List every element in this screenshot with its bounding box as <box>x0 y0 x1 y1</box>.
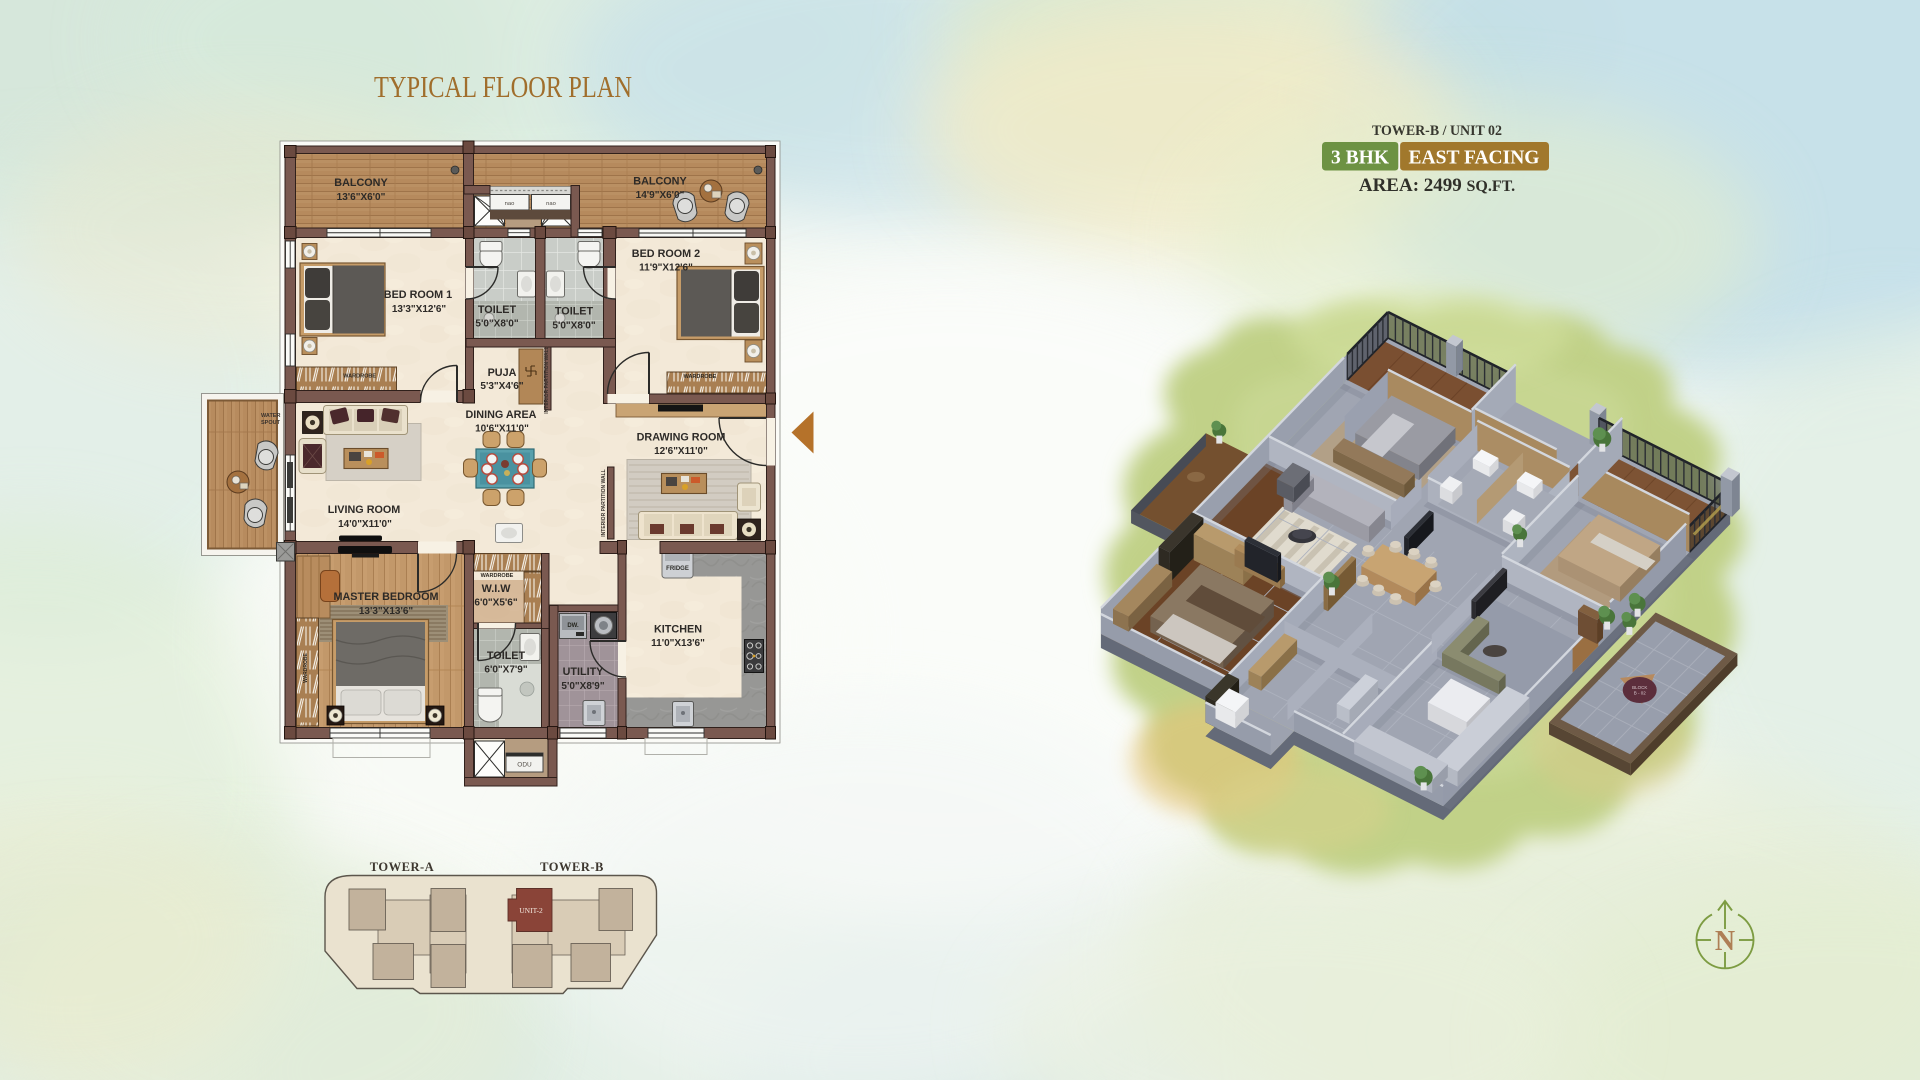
svg-text:INTERIOR PARTITION WALL: INTERIOR PARTITION WALL <box>544 346 550 413</box>
svg-text:14'0"X11'0": 14'0"X11'0" <box>338 519 392 530</box>
svg-text:5'0"X8'0": 5'0"X8'0" <box>552 321 595 332</box>
svg-text:W.I.W: W.I.W <box>482 583 512 595</box>
svg-text:5'0"X8'0": 5'0"X8'0" <box>475 319 518 330</box>
svg-text:EAST FACING: EAST FACING <box>1409 148 1540 169</box>
svg-text:WARDROBE: WARDROBE <box>303 652 309 682</box>
svg-text:TOILET: TOILET <box>555 306 594 318</box>
svg-text:LIVING ROOM: LIVING ROOM <box>328 504 401 516</box>
svg-text:BALCONY: BALCONY <box>334 177 388 189</box>
svg-text:13'3"X12'6": 13'3"X12'6" <box>392 304 447 315</box>
svg-text:DRAWING ROOM: DRAWING ROOM <box>637 432 726 444</box>
svg-text:5'0"X8'9": 5'0"X8'9" <box>561 681 604 692</box>
svg-text:WARDROBE: WARDROBE <box>481 573 514 579</box>
svg-text:10'6"X11'0": 10'6"X11'0" <box>475 424 529 435</box>
svg-text:WATER: WATER <box>261 413 280 419</box>
svg-text:14'9"X6'0": 14'9"X6'0" <box>636 190 685 201</box>
svg-text:DW.: DW. <box>567 623 579 629</box>
svg-text:11'9"X12'6": 11'9"X12'6" <box>639 263 693 274</box>
svg-text:TOWER-B: TOWER-B <box>540 860 604 874</box>
svg-text:BLOCK: BLOCK <box>1632 685 1647 690</box>
svg-text:BED ROOM 1: BED ROOM 1 <box>384 289 452 301</box>
svg-text:TOWER-B / UNIT 02: TOWER-B / UNIT 02 <box>1372 123 1502 139</box>
svg-text:TOILET: TOILET <box>487 650 526 662</box>
svg-text:5'3"X4'6": 5'3"X4'6" <box>480 381 523 392</box>
svg-text:nao: nao <box>546 201 556 207</box>
svg-text:TOILET: TOILET <box>478 304 517 316</box>
svg-text:11'0"X13'6": 11'0"X13'6" <box>651 638 705 649</box>
svg-text:nao: nao <box>505 201 515 207</box>
svg-text:BED ROOM 2: BED ROOM 2 <box>632 248 700 260</box>
svg-text:DINING AREA: DINING AREA <box>466 409 537 421</box>
svg-text:TOWER-A: TOWER-A <box>370 860 434 874</box>
svg-text:UTILITY: UTILITY <box>563 666 605 678</box>
svg-text:UNIT-2: UNIT-2 <box>519 906 543 915</box>
svg-text:13'6"X6'0": 13'6"X6'0" <box>337 192 386 203</box>
svg-text:KITCHEN: KITCHEN <box>654 624 702 636</box>
svg-text:AREA: 2499 SQ.FT.: AREA: 2499 SQ.FT. <box>1359 175 1515 196</box>
svg-text:N: N <box>1715 926 1735 957</box>
svg-text:WARDROBE: WARDROBE <box>343 374 376 380</box>
svg-text:ODU: ODU <box>517 762 532 769</box>
svg-text:MASTER BEDROOM: MASTER BEDROOM <box>334 591 439 603</box>
svg-text:INTERIOR PARTITION WALL: INTERIOR PARTITION WALL <box>601 469 607 536</box>
svg-text:SPOUT: SPOUT <box>261 420 281 426</box>
svg-text:BALCONY: BALCONY <box>633 176 687 188</box>
svg-text:3 BHK: 3 BHK <box>1331 148 1390 169</box>
svg-text:6'0"X7'9": 6'0"X7'9" <box>484 665 527 676</box>
svg-text:12'6"X11'0": 12'6"X11'0" <box>654 446 708 457</box>
svg-text:WARDROBE: WARDROBE <box>684 374 717 380</box>
svg-text:PUJA: PUJA <box>488 367 517 379</box>
svg-text:FRIDGE: FRIDGE <box>666 566 689 572</box>
svg-text:TYPICAL FLOOR PLAN: TYPICAL FLOOR PLAN <box>374 69 632 104</box>
svg-text:6'0"X5'6": 6'0"X5'6" <box>474 598 517 609</box>
svg-text:B - 02: B - 02 <box>1634 691 1647 696</box>
svg-text:13'3"X13'6": 13'3"X13'6" <box>359 606 414 617</box>
